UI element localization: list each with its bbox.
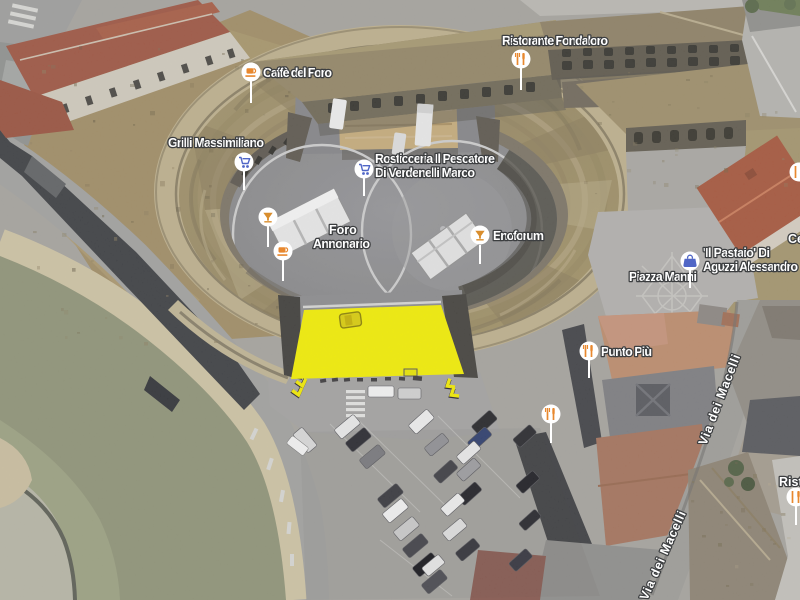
svg-text:Aguzzi Alessandro: Aguzzi Alessandro	[703, 260, 798, 274]
svg-text:Di Verdenelli Marco: Di Verdenelli Marco	[375, 166, 475, 180]
svg-text:Annonario: Annonario	[313, 237, 370, 251]
svg-text:Punto Più: Punto Più	[601, 345, 652, 359]
svg-text:Risto: Risto	[779, 475, 800, 489]
svg-text:Piazza Manni: Piazza Manni	[629, 270, 697, 284]
svg-text:Ce: Ce	[788, 232, 800, 246]
svg-text:'Il Pastaio' Di: 'Il Pastaio' Di	[703, 246, 770, 260]
svg-text:Rosticceria Il Pescatore: Rosticceria Il Pescatore	[375, 152, 495, 166]
svg-text:Caffè del Foro: Caffè del Foro	[263, 66, 332, 80]
svg-text:Ristorante Fondaloro: Ristorante Fondaloro	[502, 34, 608, 48]
svg-text:Enoforum: Enoforum	[493, 229, 544, 243]
svg-text:Foro: Foro	[329, 223, 357, 237]
svg-text:Grilli Massimiliano: Grilli Massimiliano	[168, 136, 264, 150]
